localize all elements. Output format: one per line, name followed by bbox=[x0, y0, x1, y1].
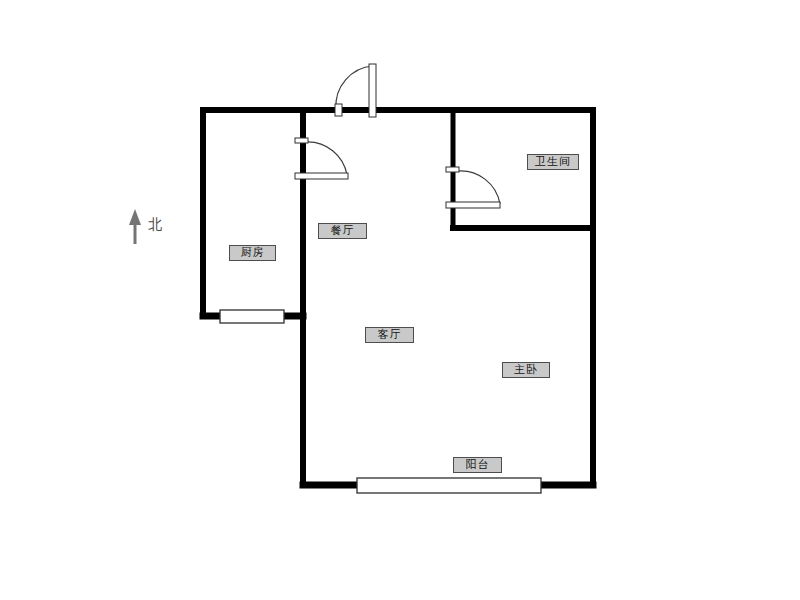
entrance-door-arc bbox=[336, 66, 373, 109]
kitchen-door-leaf bbox=[295, 173, 348, 179]
bathroom-door-leaf bbox=[446, 202, 500, 208]
bathroom-door-arc bbox=[457, 171, 500, 204]
room-label-balcony: 阳台 bbox=[453, 457, 502, 473]
kitchen-door-jamb bbox=[295, 138, 308, 143]
balcony-window bbox=[357, 478, 541, 493]
room-label-bathroom: 卫生间 bbox=[527, 154, 579, 170]
entrance-door-leaf bbox=[369, 64, 376, 117]
floor-plan-canvas: 厨房 餐厅 卫生间 客厅 主卧 阳台 北 bbox=[0, 0, 800, 600]
north-arrow-head bbox=[129, 209, 141, 225]
bathroom-door-jamb bbox=[446, 167, 459, 172]
room-label-dining: 餐厅 bbox=[318, 223, 367, 239]
entrance-door-jamb bbox=[335, 104, 342, 116]
north-label: 北 bbox=[148, 216, 162, 232]
room-label-bedroom: 主卧 bbox=[502, 362, 550, 378]
north-arrow-icon bbox=[129, 209, 141, 244]
room-label-living: 客厅 bbox=[365, 327, 414, 343]
kitchen-door-arc bbox=[306, 142, 347, 175]
room-label-kitchen: 厨房 bbox=[229, 245, 276, 261]
floor-plan-drawing bbox=[0, 0, 800, 600]
kitchen-window bbox=[220, 310, 284, 323]
